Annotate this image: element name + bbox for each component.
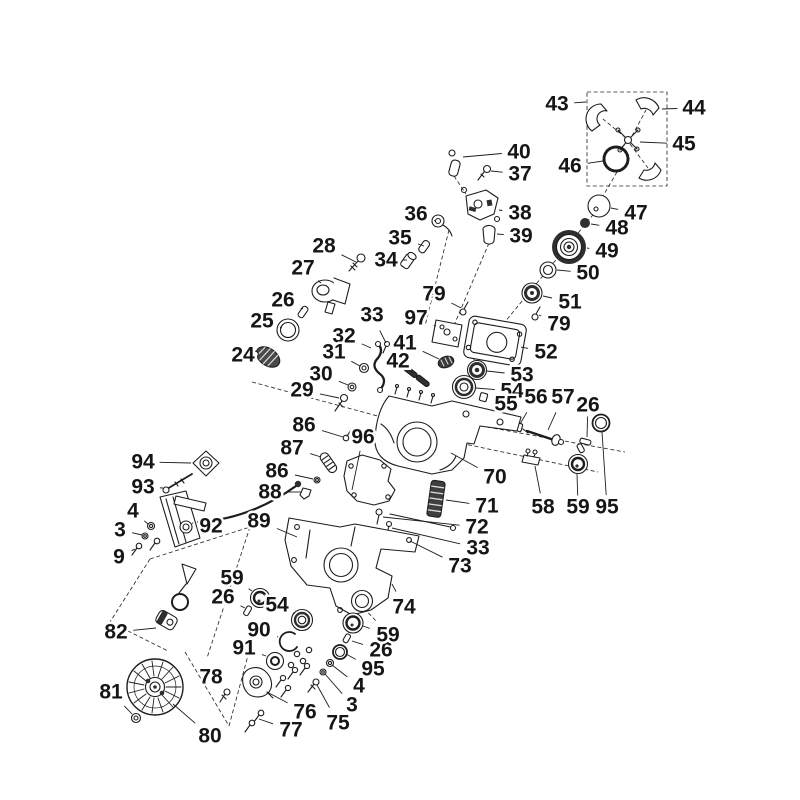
leader-line-44 bbox=[662, 109, 677, 110]
washer-91 bbox=[267, 653, 284, 670]
part-label-78: 78 bbox=[199, 666, 223, 689]
leader-line-47 bbox=[611, 208, 618, 209]
leader-line-58 bbox=[535, 466, 540, 493]
worm-gear bbox=[251, 341, 284, 371]
plate-97 bbox=[432, 320, 462, 347]
leader-line-4 bbox=[332, 665, 347, 677]
grommet-41 bbox=[437, 354, 456, 370]
leader-line-9 bbox=[132, 549, 135, 551]
ring-95c bbox=[333, 645, 347, 659]
part-label-71: 71 bbox=[475, 495, 499, 518]
part-label-26: 26 bbox=[576, 394, 599, 417]
part-label-3: 3 bbox=[114, 519, 126, 542]
leader-line-95 bbox=[602, 432, 606, 495]
part-label-58: 58 bbox=[531, 496, 555, 519]
leader-line-3 bbox=[132, 533, 142, 535]
leader-line-41 bbox=[423, 351, 439, 359]
leader-line-86 bbox=[322, 431, 343, 437]
part-label-54: 54 bbox=[265, 594, 289, 617]
part-label-48: 48 bbox=[605, 217, 629, 240]
leader-line-54 bbox=[476, 388, 495, 390]
part-label-40: 40 bbox=[507, 141, 530, 164]
part-label-81: 81 bbox=[99, 681, 123, 704]
part-label-96: 96 bbox=[351, 426, 374, 449]
oiler-seal-ring bbox=[277, 319, 299, 341]
washer-31 bbox=[360, 364, 369, 373]
part-label-73: 73 bbox=[448, 555, 471, 578]
leader-line-81 bbox=[124, 706, 132, 714]
part-label-24: 24 bbox=[231, 344, 255, 367]
leader-line-57 bbox=[548, 412, 556, 430]
leader-line-48 bbox=[591, 224, 599, 225]
leader-line-91 bbox=[262, 655, 266, 656]
leader-line-94 bbox=[160, 462, 191, 463]
leader-line-59 bbox=[249, 589, 252, 591]
leader-line-87 bbox=[310, 454, 321, 457]
leader-line-26 bbox=[241, 606, 246, 608]
screw-86a bbox=[343, 430, 351, 441]
part-label-77: 77 bbox=[279, 719, 302, 742]
oil-seal-53 bbox=[468, 361, 487, 380]
part-label-79: 79 bbox=[422, 283, 445, 306]
part-label-37: 37 bbox=[508, 163, 531, 186]
oiler-screw bbox=[349, 254, 365, 271]
leader-line-59 bbox=[363, 626, 370, 629]
cover-screw-79a bbox=[460, 302, 468, 315]
part-label-91: 91 bbox=[232, 637, 256, 660]
part-label-46: 46 bbox=[558, 155, 581, 178]
leader-line-79 bbox=[539, 315, 541, 316]
part-label-25: 25 bbox=[250, 310, 274, 333]
part-label-92: 92 bbox=[199, 515, 222, 538]
part-label-56: 56 bbox=[524, 386, 547, 409]
part-label-86: 86 bbox=[265, 460, 288, 483]
oil-cap-group-82 bbox=[154, 564, 196, 631]
leader-line-82 bbox=[133, 628, 156, 630]
part-label-95: 95 bbox=[595, 496, 619, 519]
clutch-spring-ring bbox=[604, 147, 628, 171]
part-label-50: 50 bbox=[576, 262, 599, 285]
leader-line-40 bbox=[463, 154, 502, 158]
leader-line-59 bbox=[577, 474, 578, 496]
leader-line-30 bbox=[339, 381, 348, 385]
clutch-nut bbox=[580, 218, 590, 228]
clutch-drum-sprocket bbox=[552, 230, 586, 264]
nut-30 bbox=[348, 383, 356, 391]
leader-line-96 bbox=[352, 451, 360, 490]
leader-line-31 bbox=[351, 361, 360, 366]
flywheel-80 bbox=[127, 659, 183, 715]
part-label-26: 26 bbox=[211, 586, 234, 609]
drum-59d bbox=[343, 613, 363, 633]
screws-9 bbox=[132, 538, 160, 555]
leader-line-46 bbox=[588, 161, 603, 163]
part-label-70: 70 bbox=[483, 466, 506, 489]
part-label-74: 74 bbox=[392, 596, 416, 619]
leader-line-75 bbox=[317, 685, 330, 708]
part-label-33: 33 bbox=[360, 304, 383, 327]
leader-line-74 bbox=[392, 584, 396, 592]
part-label-39: 39 bbox=[509, 225, 532, 248]
part-label-79: 79 bbox=[547, 313, 570, 336]
pin-26c bbox=[243, 605, 252, 616]
leader-line-38 bbox=[499, 210, 502, 211]
part-label-93: 93 bbox=[131, 476, 154, 499]
leader-line-80 bbox=[173, 704, 195, 723]
oiler-manifold-58 bbox=[522, 449, 540, 465]
buffer-71 bbox=[427, 480, 446, 518]
part-label-36: 36 bbox=[404, 203, 427, 226]
leader-line-29 bbox=[320, 394, 339, 398]
part-label-44: 44 bbox=[682, 97, 706, 120]
part-label-34: 34 bbox=[374, 249, 398, 272]
part-label-97: 97 bbox=[404, 307, 427, 330]
leader-line-3 bbox=[325, 674, 342, 694]
part-label-45: 45 bbox=[672, 133, 696, 156]
screws-77 bbox=[245, 710, 264, 732]
drum-washer bbox=[540, 262, 556, 278]
part-label-52: 52 bbox=[534, 341, 557, 364]
crank-bearing-54 bbox=[453, 376, 476, 399]
part-label-57: 57 bbox=[551, 386, 574, 409]
bar-stud-57 bbox=[523, 429, 564, 447]
part-label-9: 9 bbox=[113, 546, 125, 569]
pin-26b bbox=[576, 438, 591, 454]
part-label-42: 42 bbox=[386, 350, 409, 373]
oiler-bracket bbox=[312, 278, 350, 314]
leader-line-76 bbox=[267, 692, 288, 703]
leader-line-28 bbox=[342, 255, 357, 262]
screw-78 bbox=[220, 689, 230, 702]
pump-screw bbox=[478, 166, 491, 181]
ring-95b bbox=[593, 415, 610, 432]
coil-screw-93 bbox=[163, 474, 192, 493]
leader-line-43 bbox=[574, 102, 586, 103]
part-label-89: 89 bbox=[247, 510, 270, 533]
part-label-80: 80 bbox=[198, 725, 221, 748]
clutch-washer bbox=[588, 195, 610, 217]
drum-59b bbox=[569, 455, 588, 474]
leader-line-77 bbox=[259, 719, 273, 724]
leader-line-45 bbox=[640, 142, 667, 143]
adapter-plate-76 bbox=[243, 668, 273, 698]
oil-pump-plunger bbox=[448, 150, 461, 177]
part-label-72: 72 bbox=[465, 516, 488, 539]
leader-line-50 bbox=[557, 270, 571, 271]
leader-line-4 bbox=[144, 521, 148, 524]
oil-line-fitting bbox=[400, 251, 418, 270]
pump-cover-52 bbox=[463, 315, 527, 366]
part-label-51: 51 bbox=[558, 291, 582, 314]
part-label-4: 4 bbox=[127, 500, 139, 523]
exploded-parts-diagram: 4344454647484950514037383936353428272625… bbox=[0, 0, 800, 800]
part-label-87: 87 bbox=[280, 437, 303, 460]
clip-88 bbox=[300, 488, 311, 499]
part-label-86: 86 bbox=[292, 414, 315, 437]
leader-line-37 bbox=[491, 171, 503, 172]
part-label-26: 26 bbox=[271, 289, 294, 312]
oil-pump-body bbox=[462, 188, 500, 222]
cover-screw-79b bbox=[532, 307, 540, 320]
spring-87 bbox=[318, 451, 338, 474]
brake-lever-32 bbox=[374, 342, 384, 393]
parts-diagram-page: 4344454647484950514037383936353428272625… bbox=[0, 0, 800, 800]
gasket-96 bbox=[344, 455, 395, 505]
clip-55 bbox=[479, 392, 488, 402]
screw-72 bbox=[376, 509, 382, 524]
leader-line-71 bbox=[446, 500, 469, 503]
part-label-29: 29 bbox=[290, 379, 313, 402]
pin-26d bbox=[342, 633, 351, 643]
leader-line-32 bbox=[362, 344, 371, 348]
washer-3a bbox=[142, 533, 148, 539]
nut-86b bbox=[314, 477, 320, 483]
part-label-27: 27 bbox=[291, 257, 314, 280]
leader-line-51 bbox=[543, 296, 552, 298]
part-label-28: 28 bbox=[312, 235, 336, 258]
part-label-59: 59 bbox=[566, 496, 589, 519]
part-label-49: 49 bbox=[595, 240, 618, 263]
pump-lever bbox=[432, 215, 452, 236]
leader-line-39 bbox=[497, 234, 504, 235]
leader-line-79 bbox=[451, 303, 461, 308]
leader-line-26 bbox=[352, 641, 363, 644]
spark-plug-boot-94 bbox=[193, 451, 219, 476]
part-label-38: 38 bbox=[508, 202, 532, 225]
circlip-90 bbox=[280, 632, 297, 651]
pump-pin bbox=[418, 239, 431, 254]
part-label-31: 31 bbox=[322, 341, 346, 364]
bearing-54b bbox=[292, 610, 313, 631]
part-label-59: 59 bbox=[376, 624, 399, 647]
part-label-43: 43 bbox=[545, 93, 568, 116]
flywheel-nut-81 bbox=[132, 714, 141, 723]
part-label-82: 82 bbox=[104, 621, 127, 644]
leader-line-86 bbox=[295, 475, 313, 479]
leader-line-26 bbox=[587, 417, 588, 438]
needle-bearing-cup bbox=[522, 283, 542, 303]
part-label-88: 88 bbox=[258, 481, 282, 504]
pump-cap bbox=[483, 225, 495, 244]
part-label-94: 94 bbox=[131, 451, 155, 474]
leader-line-72 bbox=[383, 517, 460, 525]
leader-line-95 bbox=[346, 654, 356, 659]
oiler-pin bbox=[297, 305, 309, 318]
leader-line-33 bbox=[380, 330, 386, 343]
leader-line-53 bbox=[487, 371, 505, 373]
screw-29 bbox=[335, 395, 348, 412]
nut-4a bbox=[148, 523, 155, 530]
part-label-35: 35 bbox=[388, 227, 412, 250]
part-label-55: 55 bbox=[494, 393, 518, 416]
